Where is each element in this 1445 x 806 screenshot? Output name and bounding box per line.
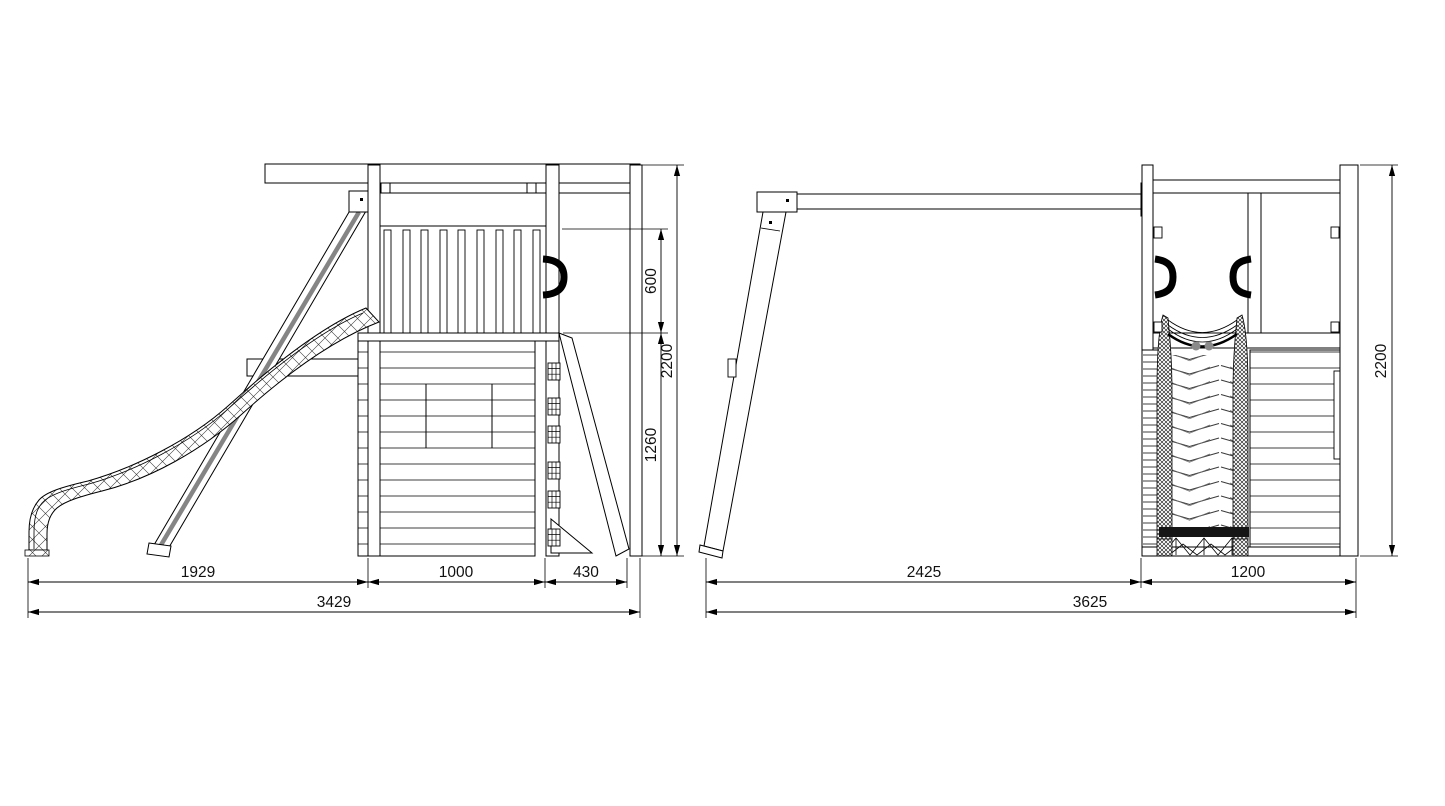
climbing-hold <box>548 363 560 380</box>
slide-support-frame <box>147 191 375 557</box>
plank-wall-side <box>358 341 535 556</box>
slide-right-rail-foot <box>1233 539 1248 556</box>
slide-left-rail-foot <box>1157 539 1172 556</box>
bolt-dot <box>360 198 363 201</box>
slide-front-view <box>1157 315 1249 556</box>
climbing-board <box>559 333 629 556</box>
swing-leg-bracket <box>728 359 736 377</box>
tower-top-beam <box>1142 180 1358 193</box>
roof-beam <box>265 164 640 183</box>
dim-label-lower-wall-height: 1260 <box>643 427 660 462</box>
technical-drawing-page: 1929 1000 430 3429 600 1260 2200 2425 12… <box>0 0 1445 806</box>
climbing-wall <box>548 333 629 556</box>
swing-leg <box>704 212 786 551</box>
slide-support-foot <box>147 543 171 557</box>
dim-label-swing-extent: 2425 <box>907 564 941 581</box>
rail-bracket <box>1331 322 1339 332</box>
slide-roller <box>1192 342 1201 351</box>
railing-side <box>380 226 546 333</box>
climbing-hold <box>548 491 560 508</box>
back-frame-post <box>630 165 642 556</box>
grab-handle-left <box>1155 259 1173 295</box>
swing-beam <box>795 194 1143 209</box>
platform-band-front <box>1142 333 1358 348</box>
dim-label-total-height-left: 2200 <box>659 343 676 378</box>
dim-label-railing-height: 600 <box>643 268 660 294</box>
slide-roller <box>1205 342 1214 351</box>
bolt-dot <box>769 221 772 224</box>
dim-label-tower-width-front: 1200 <box>1231 564 1266 581</box>
swing-frame <box>699 183 1153 558</box>
climbing-hold <box>548 398 560 415</box>
plank-wall-front <box>1250 350 1340 547</box>
upper-front-beam <box>380 183 630 193</box>
rail-bracket <box>1154 322 1162 332</box>
slide-lower-curve-band <box>1159 527 1249 537</box>
roof-notch-left <box>381 183 390 193</box>
wall-edge-column <box>358 341 368 556</box>
slide-left-rail <box>1157 315 1172 539</box>
slide-chute <box>29 308 379 550</box>
dim-label-slide-extent: 1929 <box>181 564 215 581</box>
left-view-side-elevation <box>25 164 642 557</box>
slide-side-view <box>25 308 379 556</box>
front-post <box>368 165 380 556</box>
rail-bracket <box>1331 227 1339 238</box>
climbing-hold <box>548 529 560 546</box>
rail-bracket <box>1154 227 1162 238</box>
slide-right-rail <box>1233 315 1248 539</box>
slide-surface-ripples <box>1172 355 1233 527</box>
roof-notch-right <box>527 183 536 193</box>
tower-right-post <box>1340 165 1358 556</box>
bolt-dot <box>786 199 789 202</box>
tower-left-post <box>1142 165 1153 350</box>
platform-band <box>358 333 559 341</box>
dim-label-climbing-wall-extent: 430 <box>573 564 599 581</box>
dim-label-tower-width: 1000 <box>439 564 474 581</box>
slide-end-foot <box>25 550 49 556</box>
right-view-front-elevation <box>699 165 1358 558</box>
base-beam <box>1142 547 1358 556</box>
tower-middle-post <box>1248 193 1261 333</box>
dim-label-total-width-right: 3625 <box>1073 594 1107 611</box>
dim-label-total-width-left: 3429 <box>317 594 351 611</box>
climbing-hold <box>548 462 560 479</box>
playground-elevation-drawing: 1929 1000 430 3429 600 1260 2200 2425 12… <box>0 0 1445 806</box>
swing-pivot-block <box>757 192 797 212</box>
climbing-hold <box>548 426 560 443</box>
dim-label-total-height-right: 2200 <box>1373 343 1390 378</box>
